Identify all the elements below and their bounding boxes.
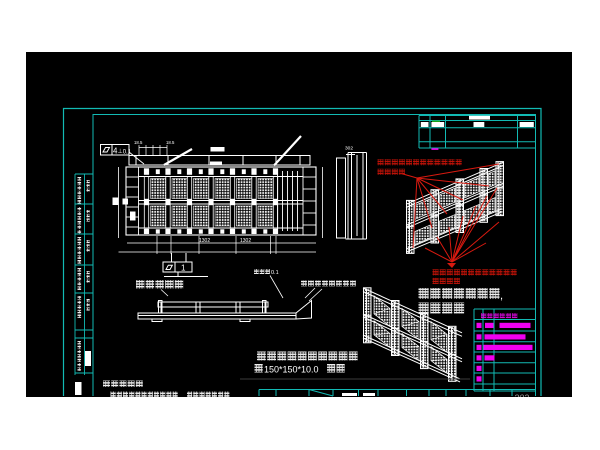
svg-text:1: 1 — [181, 264, 186, 273]
svg-text:18.5: 18.5 — [166, 140, 175, 145]
svg-text:302: 302 — [345, 146, 353, 152]
svg-text:0.1: 0.1 — [271, 270, 279, 276]
svg-text:,: , — [500, 290, 503, 302]
svg-text:150*150*10.0: 150*150*10.0 — [264, 365, 319, 375]
svg-text:18.5: 18.5 — [134, 140, 143, 145]
svg-text:302: 302 — [514, 393, 529, 397]
svg-text:1302: 1302 — [240, 238, 251, 244]
svg-text:1302: 1302 — [199, 238, 210, 244]
